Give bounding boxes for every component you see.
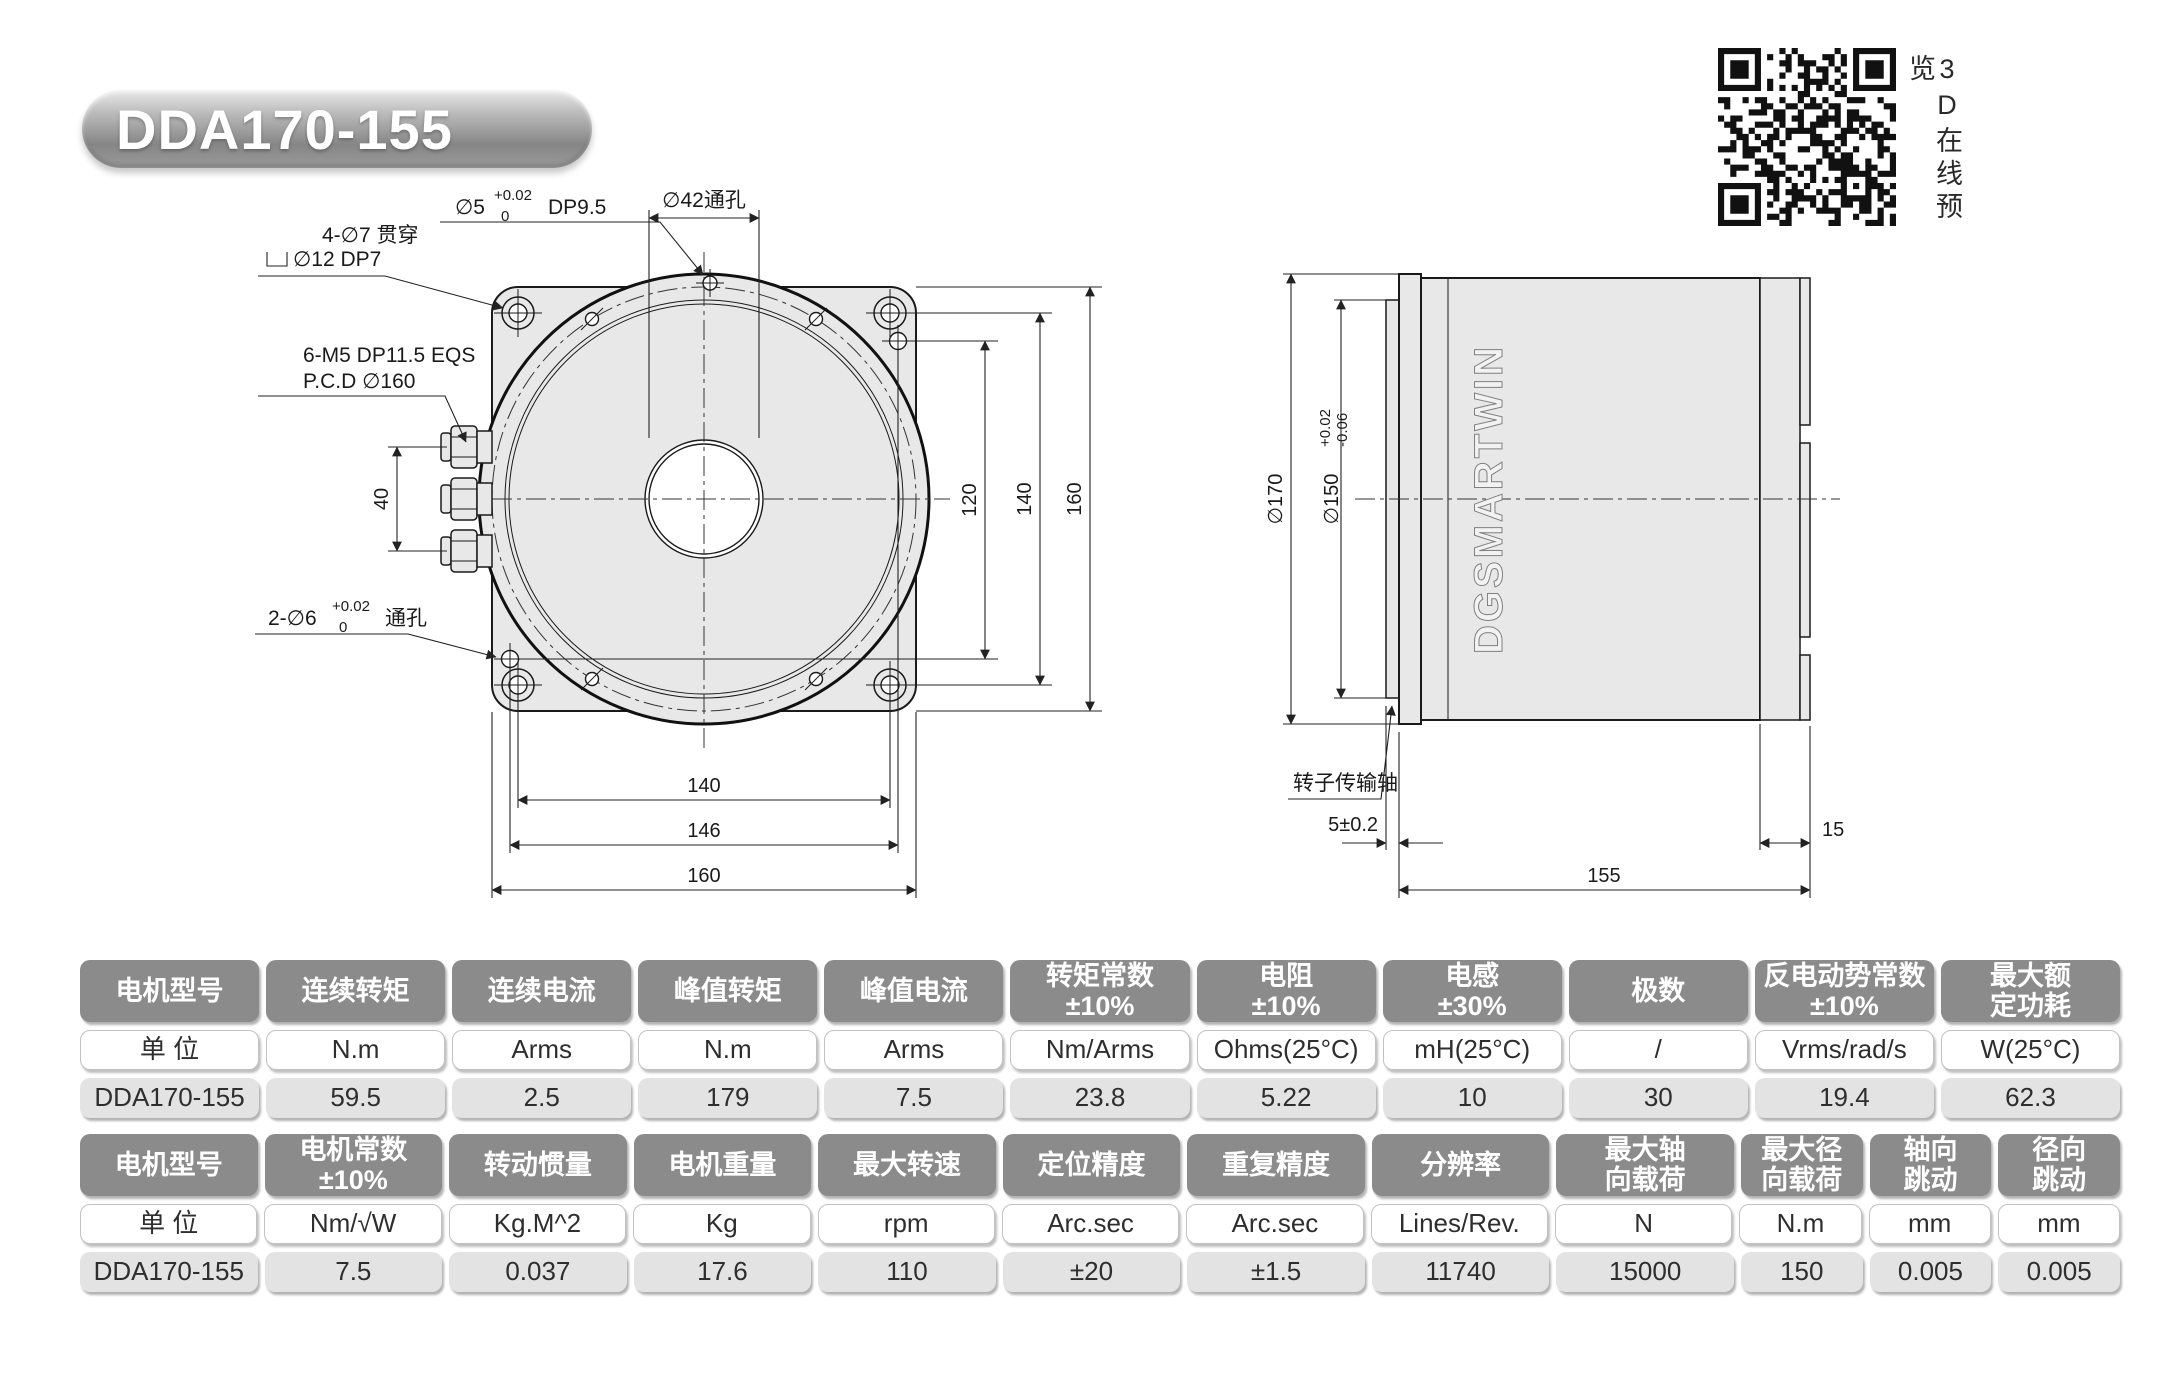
dimension-text: 155 [1587,865,1620,887]
tolerance-upper: +0.02 [494,187,532,204]
header-cell: 最大轴 向载荷 [1556,1134,1734,1196]
unit-cell: N [1555,1204,1732,1244]
annotation-tap-holes: 6-M5 DP11.5 EQS P.C.D ∅160 [258,344,475,442]
table1-unit-row: 单 位 N.m Arms N.m Arms Nm/Arms Ohms(25°C)… [80,1030,2120,1070]
value-cell: 15000 [1556,1252,1734,1292]
unit-cell: Nm/√W [264,1204,441,1244]
unit-cell: N.m [1739,1204,1861,1244]
header-cell: 电感 ±30% [1383,960,1562,1022]
value-cell: 19.4 [1755,1078,1934,1118]
dimension-text: 140 [1014,482,1036,515]
value-cell: 5.22 [1197,1078,1376,1118]
dimension-connector-pitch: 40 [371,447,447,551]
header-cell: 最大转速 [818,1134,996,1196]
end-strip [1800,278,1810,425]
unit-cell: mm [1998,1204,2120,1244]
header-cell: 峰值电流 [824,960,1003,1022]
annotation-shaft: 转子传输轴 [1288,706,1398,799]
table2-unit-row: 单 位 Nm/√W Kg.M^2 Kg rpm Arc.sec Arc.sec … [80,1204,2120,1244]
dimension-end-width: 15 [1760,724,1844,850]
value-cell: ±20 [1003,1252,1181,1292]
cable-gland [441,478,492,520]
dimension-spigot-diameter: ∅150 +0.02 -0.06 [1317,300,1386,698]
value-cell: 62.3 [1941,1078,2120,1118]
value-cell: 179 [638,1078,817,1118]
unit-cell: / [1569,1030,1748,1070]
unit-cell: Arms [452,1030,631,1070]
datasheet-page: DDA170-155 3D在线预览 [0,0,2180,1373]
unit-cell: mm [1869,1204,1991,1244]
dimension-text: ∅150 [1321,474,1343,525]
header-cell: 电机型号 [80,1134,258,1196]
value-cell: 110 [818,1252,996,1292]
value-cell: 0.005 [1870,1252,1992,1292]
header-cell: 电机型号 [80,960,259,1022]
body-logo: DGSMARTWIN [1467,344,1511,654]
annotation-text: 2-∅6 [268,607,317,630]
annotation-index-holes: 2-∅6 +0.02 0 通孔 [255,598,496,657]
table1-value-row: DDA170-155 59.5 2.5 179 7.5 23.8 5.22 10… [80,1078,2120,1118]
table2-value-row: DDA170-155 7.5 0.037 17.6 110 ±20 ±1.5 1… [80,1252,2120,1292]
header-cell: 最大径 向载荷 [1741,1134,1863,1196]
annotation-text: 通孔 [385,607,427,630]
end-strip [1800,443,1810,637]
annotation-corner-holes: 4-∅7 贯穿 ∅12 DP7 [258,224,503,308]
dimension-text: 160 [1064,482,1086,515]
header-cell: 连续电流 [452,960,631,1022]
value-cell: DDA170-155 [80,1252,258,1292]
tolerance-upper: +0.02 [332,598,370,615]
value-cell: 17.6 [634,1252,812,1292]
header-cell: 最大额 定功耗 [1941,960,2120,1022]
annotation-text: ∅42通孔 [662,189,746,212]
unit-cell: N.m [638,1030,817,1070]
cable-gland [441,530,492,572]
unit-cell: Arc.sec [1186,1204,1363,1244]
header-cell: 峰值转矩 [638,960,817,1022]
value-cell: 150 [1741,1252,1863,1292]
table1-header-row: 电机型号 连续转矩 连续电流 峰值转矩 峰值电流 转矩常数 ±10% 电阻 ±1… [80,960,2120,1022]
value-cell: DDA170-155 [80,1078,259,1118]
leader-line [255,634,496,657]
unit-cell: Ohms(25°C) [1197,1030,1376,1070]
header-cell: 反电动势常数 ±10% [1755,960,1934,1022]
tolerance-lower: -0.06 [1334,413,1351,447]
dimension-text: 5±0.2 [1328,814,1378,836]
value-cell: 0.037 [449,1252,627,1292]
dimension-text: 120 [959,483,981,516]
value-cell: 2.5 [452,1078,631,1118]
header-cell: 转动惯量 [449,1134,627,1196]
annotation-text: ∅12 DP7 [293,248,381,271]
header-cell: 轴向 跳动 [1870,1134,1992,1196]
annotation-text: 6-M5 DP11.5 EQS [303,344,475,367]
value-cell: 30 [1569,1078,1748,1118]
dimension-text: 140 [687,775,720,797]
value-cell: 7.5 [824,1078,1003,1118]
value-cell: 7.5 [265,1252,443,1292]
side-view: DGSMARTWIN ∅170 ∅150 +0.02 -0.06 [1265,274,1844,898]
annotation-text: P.C.D ∅160 [303,370,415,393]
unit-cell: Vrms/rad/s [1755,1030,1934,1070]
annotation-text: DP9.5 [548,196,606,219]
end-strip [1800,655,1810,720]
front-view: ∅5 +0.02 0 DP9.5 ∅42通孔 4-∅7 贯穿 ∅12 DP7 [255,187,1102,898]
header-cell: 分辨率 [1372,1134,1550,1196]
unit-cell: Arc.sec [1002,1204,1179,1244]
header-cell: 连续转矩 [266,960,445,1022]
unit-cell: 单 位 [80,1030,259,1070]
leader-line [440,222,703,275]
annotation-text: 4-∅7 贯穿 [322,224,418,247]
unit-cell: Kg [633,1204,810,1244]
tolerance-upper: +0.02 [1317,409,1334,447]
counterbore-icon [267,252,287,266]
annotation-text: ∅5 [455,196,485,219]
header-cell: 电阻 ±10% [1197,960,1376,1022]
unit-cell: 单 位 [80,1204,257,1244]
unit-cell: Arms [824,1030,1003,1070]
header-cell: 电机常数 ±10% [265,1134,443,1196]
dimension-text: 146 [687,820,720,842]
unit-cell: N.m [266,1030,445,1070]
dimension-text: ∅170 [1265,474,1287,525]
value-cell: 11740 [1372,1252,1550,1292]
spec-tables: 电机型号 连续转矩 连续电流 峰值转矩 峰值电流 转矩常数 ±10% 电阻 ±1… [80,960,2120,1292]
cable-gland [441,426,492,468]
leader-line [258,276,503,308]
header-cell: 极数 [1569,960,1748,1022]
header-cell: 定位精度 [1003,1134,1181,1196]
value-cell: 0.005 [1998,1252,2120,1292]
value-cell: 59.5 [266,1078,445,1118]
dimension-text: 15 [1822,819,1844,841]
unit-cell: Lines/Rev. [1371,1204,1548,1244]
value-cell: ±1.5 [1187,1252,1365,1292]
value-cell: 23.8 [1010,1078,1189,1118]
dimension-text: 40 [371,488,393,510]
header-cell: 电机重量 [634,1134,812,1196]
unit-cell: Kg.M^2 [449,1204,626,1244]
unit-cell: W(25°C) [1941,1030,2120,1070]
unit-cell: Nm/Arms [1010,1030,1189,1070]
header-cell: 转矩常数 ±10% [1010,960,1189,1022]
table2-header-row: 电机型号 电机常数 ±10% 转动惯量 电机重量 最大转速 定位精度 重复精度 … [80,1134,2120,1196]
dimension-text: 160 [687,865,720,887]
header-cell: 径向 跳动 [1998,1134,2120,1196]
leader-line [258,396,466,442]
dimension-body-length: 155 [1399,726,1810,898]
value-cell: 10 [1383,1078,1562,1118]
unit-cell: mH(25°C) [1383,1030,1562,1070]
header-cell: 重复精度 [1187,1134,1365,1196]
unit-cell: rpm [818,1204,995,1244]
